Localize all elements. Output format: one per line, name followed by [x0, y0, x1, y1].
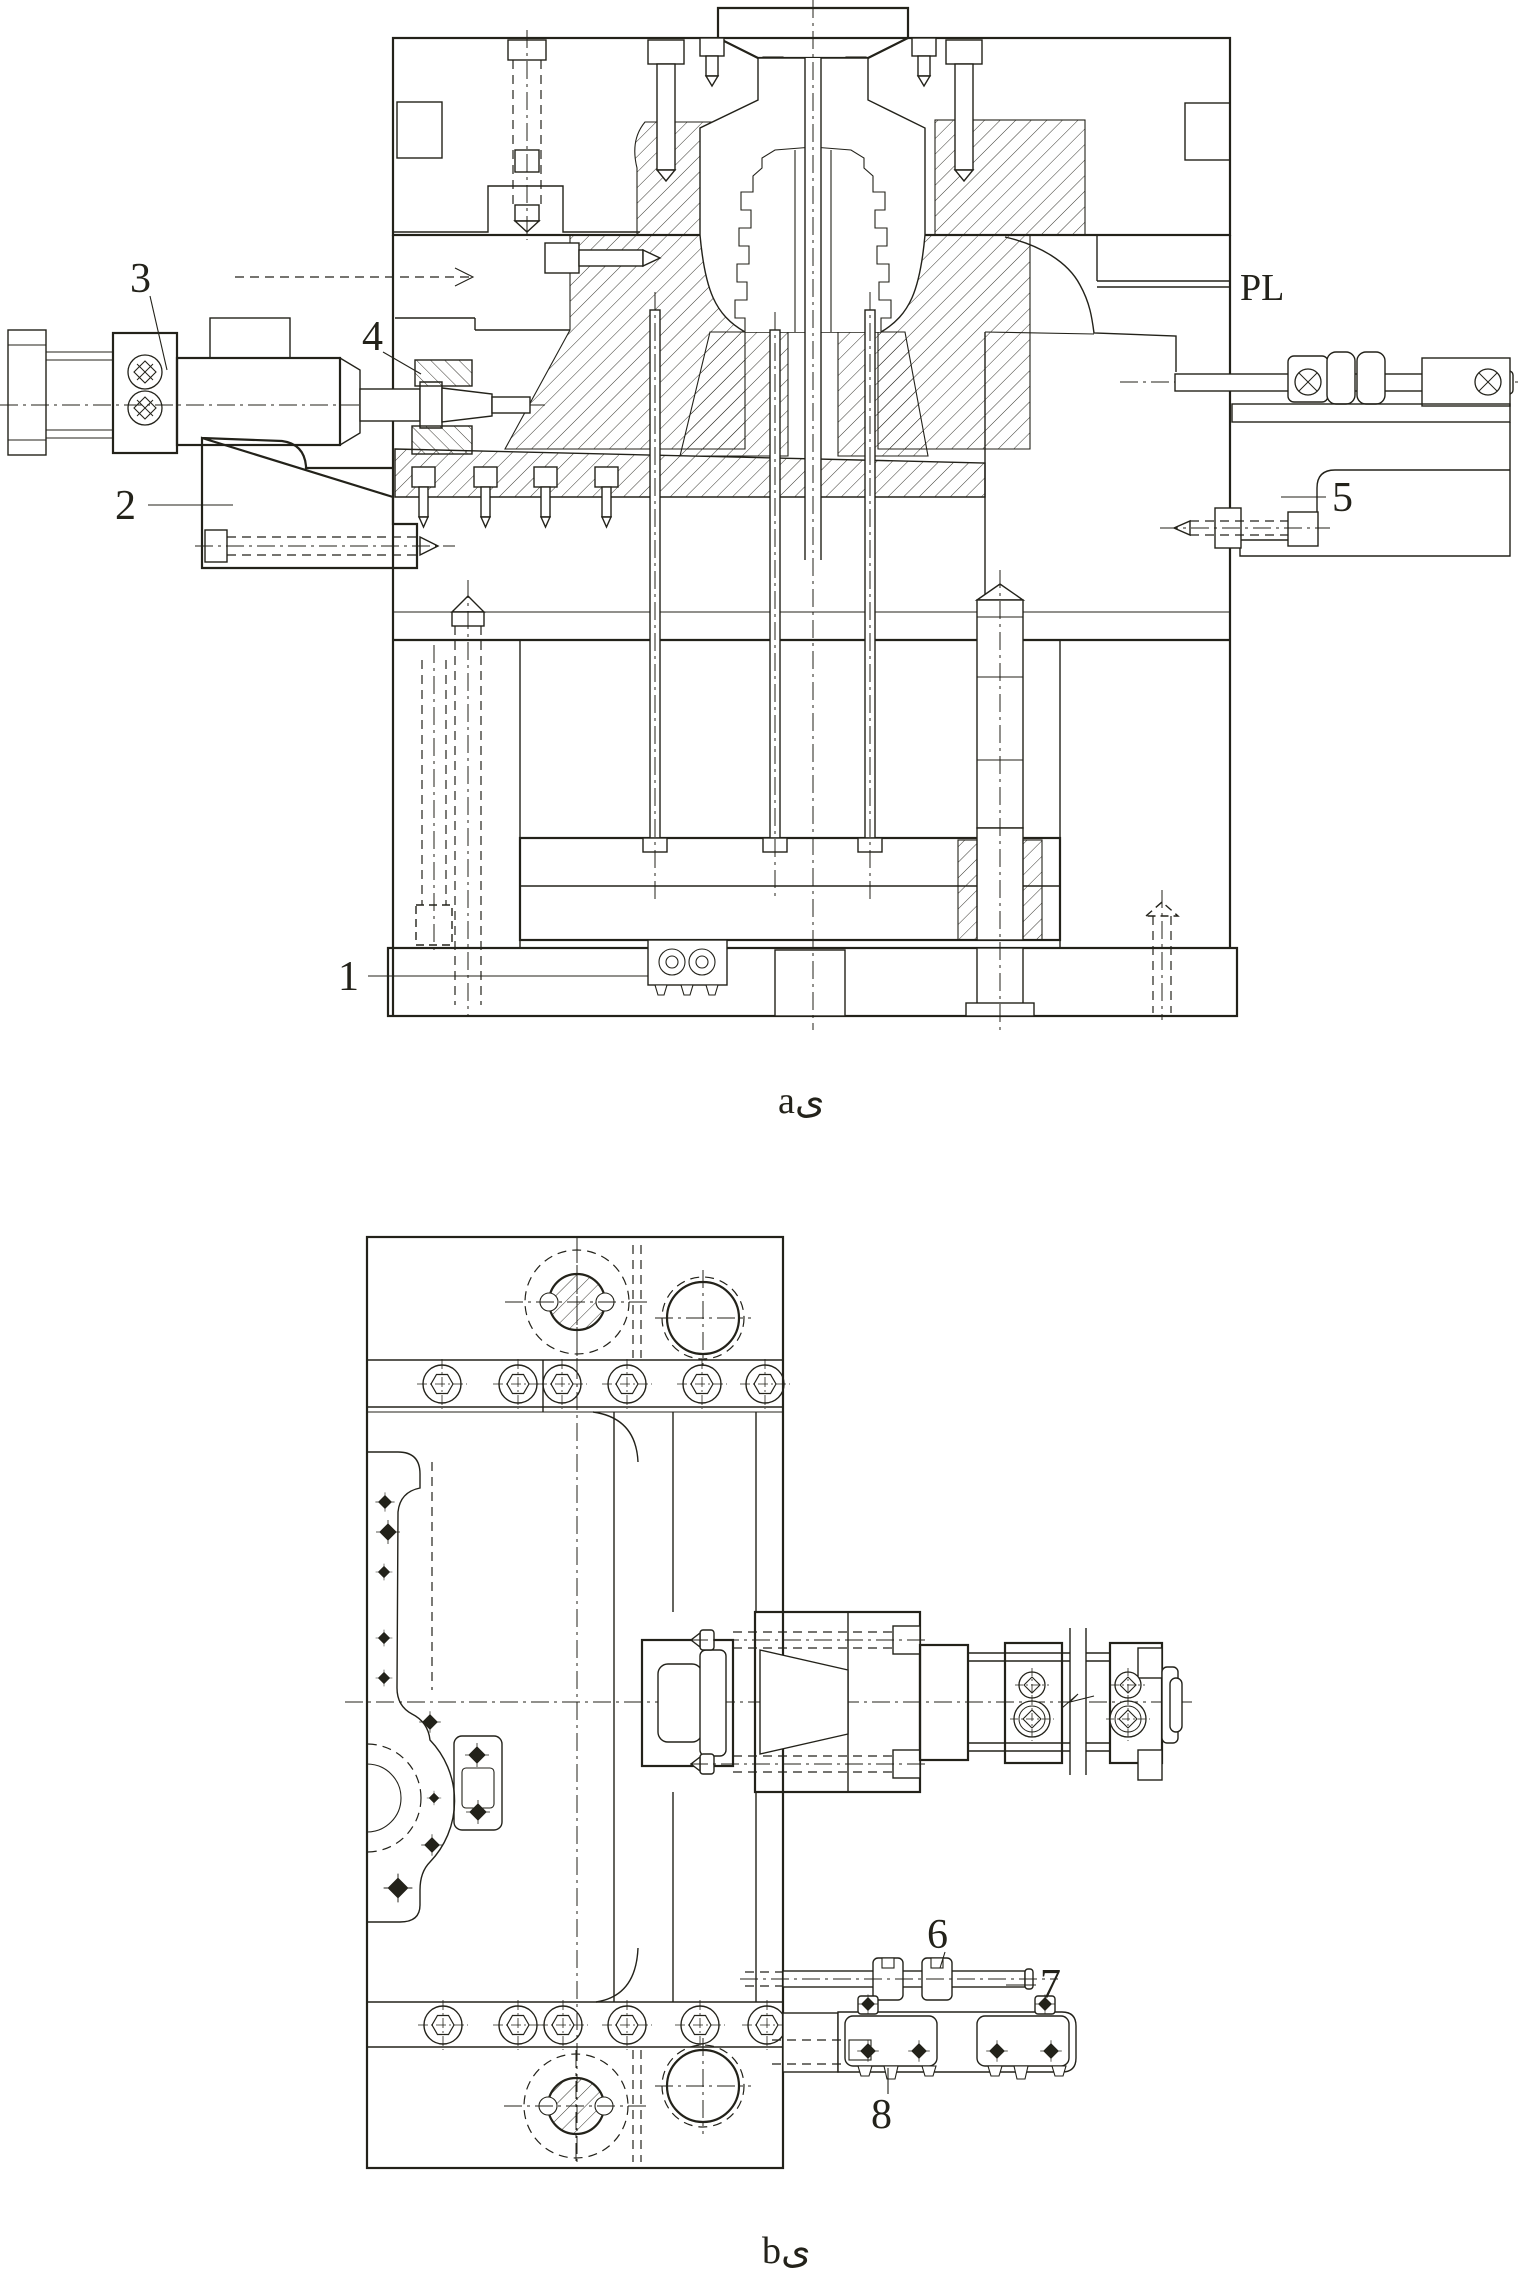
cylinder-bracket	[202, 438, 417, 568]
view-b-caption: bى	[762, 2230, 811, 2272]
guide-pillar-bottom	[504, 2050, 648, 2162]
callout-1: 1	[338, 954, 359, 1000]
callout-8: 8	[871, 2092, 892, 2138]
callout-2: 2	[115, 483, 136, 529]
callout-3: 3	[130, 256, 151, 302]
mold-assembly-drawing: 1 2 3 4 5 PL aى	[0, 0, 1524, 2281]
callout-6: 6	[927, 1912, 948, 1958]
latch-bracket	[1240, 422, 1510, 556]
drawing-canvas: 1 2 3 4 5 PL aى	[0, 0, 1524, 2281]
slide-gib-top	[415, 360, 472, 386]
stop-collar-a	[1327, 352, 1355, 404]
right-slot	[1185, 103, 1230, 160]
view-a-caption: aى	[778, 1080, 825, 1122]
ko-hole	[775, 950, 845, 1016]
return-pin	[452, 580, 484, 1015]
latch-puller	[1120, 352, 1520, 556]
guide-bushing-bottom	[655, 2038, 751, 2134]
cylinder-rear-cap	[8, 330, 46, 455]
side-core-pin	[442, 388, 492, 422]
switch-assembly	[740, 1958, 1076, 2079]
guide-bushing-top	[655, 1270, 751, 1366]
side-core-cylinder	[0, 318, 545, 568]
slide-gib-bottom	[412, 426, 472, 454]
bolt-band-bottom	[367, 2000, 792, 2050]
bolt-band-top	[367, 1359, 790, 1412]
callout-4: 4	[362, 314, 383, 360]
view-a-section: 1 2 3 4 5 PL aى	[0, 0, 1520, 1122]
stop-block-disc-springs	[648, 940, 727, 995]
piston-rod	[360, 389, 420, 421]
cylinder-body	[177, 358, 340, 445]
molded-part-outline	[313, 1452, 502, 1922]
left-slot	[397, 102, 442, 158]
parting-line-label: PL	[1240, 267, 1284, 309]
callout-7: 7	[1040, 1962, 1061, 2008]
stop-collar-b	[1357, 352, 1385, 404]
slide-cylinder-plan	[345, 1612, 1192, 1792]
view-b-plan: 6 7 8 bى	[313, 1237, 1192, 2272]
cylinder-mount-plate	[113, 333, 177, 453]
limit-switch-1	[845, 1994, 937, 2079]
callout-5: 5	[1332, 475, 1353, 521]
